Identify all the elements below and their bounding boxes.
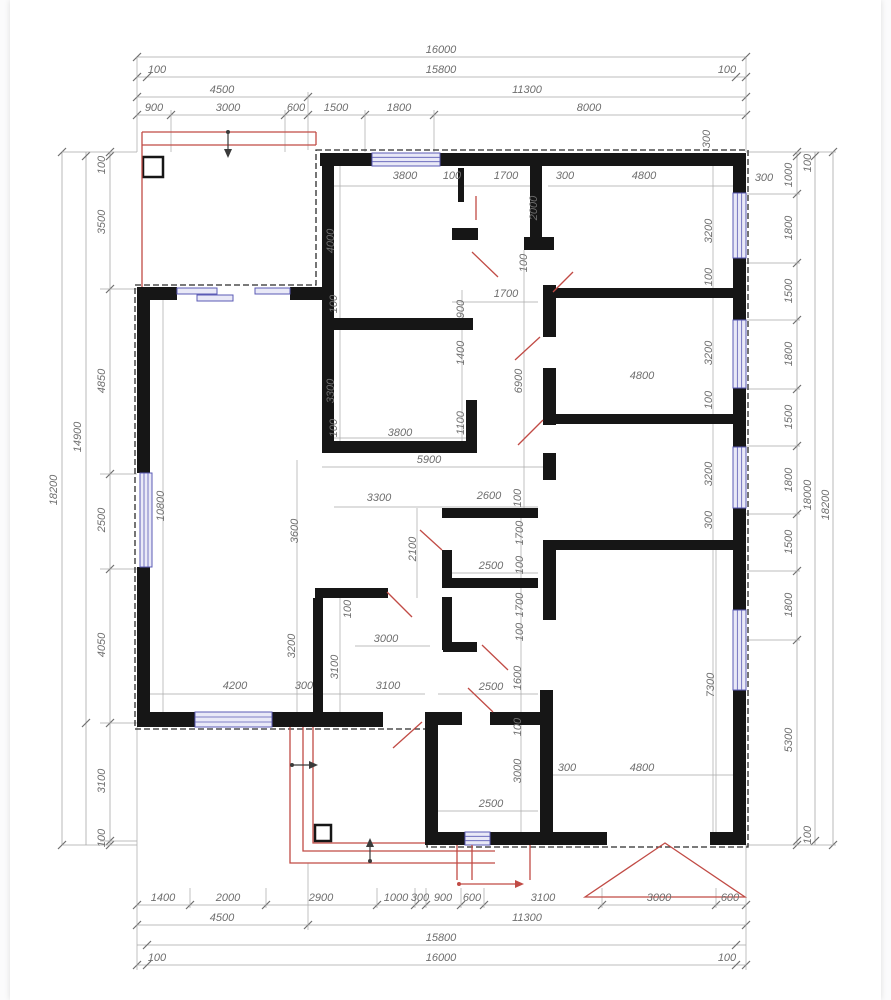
red-annotation-line	[387, 592, 412, 617]
dim-label: 11300	[512, 912, 543, 924]
dim-label: 600	[721, 892, 740, 904]
dim-label: 16000	[426, 44, 457, 56]
dim-label: 3100	[531, 892, 556, 904]
exterior-dashed-outline	[135, 150, 748, 847]
direction-arrow-dot	[368, 859, 372, 863]
wall-segment	[290, 287, 322, 300]
column-post	[143, 157, 163, 177]
dim-label: 2000	[215, 892, 241, 904]
dim-label: 2500	[478, 681, 504, 693]
wall-segment	[425, 712, 438, 845]
dim-label: 900	[145, 102, 164, 114]
dim-label: 3200	[286, 633, 298, 658]
dim-label: 4500	[210, 912, 235, 924]
red-annotation-line	[482, 645, 508, 670]
dim-label: 3300	[367, 492, 392, 504]
floor-plan-drawing: 1600010015800100450011300900300060015001…	[0, 0, 891, 1000]
dim-label: 3800	[388, 427, 413, 439]
wall-segment	[137, 287, 177, 300]
wall-segment	[733, 388, 746, 447]
wall-segment	[466, 400, 477, 453]
wall-segment	[442, 508, 538, 518]
wall-segment	[524, 237, 554, 250]
red-annotation-line	[472, 252, 498, 277]
dim-label: 1700	[514, 592, 526, 617]
dim-label: 14900	[72, 421, 84, 452]
dim-label: 4800	[630, 762, 655, 774]
dim-label: 4050	[96, 632, 108, 657]
dim-label: 2500	[96, 507, 108, 533]
dim-label: 3200	[703, 218, 715, 243]
dim-label: 1500	[783, 529, 795, 554]
dim-label: 7300	[705, 672, 717, 697]
window	[733, 447, 746, 508]
window	[140, 473, 152, 567]
wall-segment	[322, 318, 473, 330]
dim-label: 1700	[514, 520, 526, 545]
window	[372, 153, 440, 166]
dim-label: 300	[755, 172, 774, 184]
wall-segment	[543, 540, 556, 620]
dim-label: 1100	[455, 410, 467, 435]
wall-segment	[438, 712, 462, 725]
dim-label: 4200	[223, 680, 248, 692]
dim-label: 100	[718, 952, 737, 964]
dim-label: 2500	[478, 798, 504, 810]
dim-label: 100	[512, 717, 524, 736]
dim-label: 1500	[324, 102, 349, 114]
wall-segment	[548, 414, 733, 424]
window	[195, 712, 272, 727]
dim-label: 4800	[630, 370, 655, 382]
dim-label: 3500	[96, 209, 108, 234]
dim-label: 300	[411, 892, 430, 904]
dim-label: 1000	[783, 162, 795, 187]
wall-segment	[733, 508, 746, 610]
dim-label: 1700	[494, 170, 519, 182]
dim-label: 100	[328, 418, 340, 437]
dim-label: 100	[148, 64, 167, 76]
dim-label: 1600	[512, 665, 524, 690]
dim-label: 2100	[407, 536, 419, 562]
dim-label: 10800	[155, 490, 167, 521]
dim-label: 3300	[325, 378, 337, 403]
dim-label: 600	[463, 892, 482, 904]
window	[733, 610, 746, 690]
dim-label: 3100	[329, 654, 341, 679]
wall-segment	[733, 690, 746, 845]
dim-label: 1800	[783, 215, 795, 240]
windows-layer	[140, 153, 746, 845]
column-post	[315, 825, 331, 841]
dim-label: 1800	[387, 102, 412, 114]
dim-label: 600	[287, 102, 306, 114]
wall-segment	[320, 153, 372, 166]
dim-label: 900	[434, 892, 453, 904]
dim-label: 16000	[426, 952, 457, 964]
wall-segment	[272, 712, 383, 727]
dim-label: 300	[558, 762, 577, 774]
dim-label: 5900	[417, 454, 442, 466]
wall-segment	[710, 832, 746, 845]
wall-segment	[315, 588, 388, 598]
wall-segment	[548, 540, 733, 550]
dim-label: 1800	[783, 341, 795, 366]
wall-segment	[548, 288, 733, 298]
dim-label: 4000	[325, 228, 337, 253]
dim-label: 3200	[703, 461, 715, 486]
dim-label: 100	[342, 599, 354, 618]
dim-label: 1800	[783, 467, 795, 492]
dim-label: 100	[802, 825, 814, 844]
dim-label: 4850	[96, 368, 108, 393]
dim-label: 100	[718, 64, 737, 76]
wall-segment	[322, 441, 477, 453]
dim-label: 11300	[512, 84, 543, 96]
dim-label: 100	[148, 952, 167, 964]
scanned-sheet: 1600010015800100450011300900300060015001…	[0, 0, 891, 1000]
sliding-door-panel	[177, 288, 217, 294]
dim-label: 100	[514, 555, 526, 574]
dim-label: 1500	[783, 278, 795, 303]
sliding-door-panel	[255, 288, 290, 294]
dim-label: 5300	[783, 727, 795, 752]
dim-label: 18200	[48, 474, 60, 505]
dim-label: 300	[703, 510, 715, 529]
red-annotation-line	[393, 722, 422, 748]
window	[733, 193, 746, 258]
wall-segment	[137, 567, 150, 727]
dim-label: 100	[328, 294, 340, 313]
dim-label: 300	[556, 170, 575, 182]
direction-arrow-head	[515, 880, 524, 888]
wall-segment	[543, 453, 556, 480]
wall-segment	[440, 153, 746, 166]
wall-segment	[452, 228, 478, 240]
red-annotation-path	[585, 843, 745, 897]
sliding-door-panel	[197, 295, 233, 301]
window	[465, 832, 490, 845]
wall-segment	[490, 832, 607, 845]
dim-label: 300	[701, 129, 713, 148]
dim-label: 900	[455, 299, 467, 318]
dimension-labels-layer: 1600010015800100450011300900300060015001…	[48, 44, 832, 964]
dim-label: 4800	[632, 170, 657, 182]
dim-label: 1400	[151, 892, 176, 904]
dim-label: 3000	[374, 633, 399, 645]
dim-label: 3000	[512, 758, 524, 783]
dim-label: 2900	[308, 892, 334, 904]
dim-label: 8000	[577, 102, 602, 114]
dim-label: 100	[96, 828, 108, 847]
dim-label: 100	[512, 488, 524, 507]
dim-label: 100	[514, 622, 526, 641]
dim-label: 3000	[216, 102, 241, 114]
dim-label: 100	[96, 155, 108, 174]
dim-label: 1700	[494, 288, 519, 300]
red-annotation-line	[515, 337, 540, 360]
dim-label: 1800	[783, 592, 795, 617]
dim-label: 3100	[376, 680, 401, 692]
dim-label: 15800	[426, 64, 457, 76]
dim-label: 18000	[802, 479, 814, 510]
red-annotation-line	[518, 420, 543, 445]
dim-label: 2000	[528, 195, 540, 221]
dim-label: 2600	[476, 490, 502, 502]
dim-label: 2500	[478, 560, 504, 572]
dim-label: 4500	[210, 84, 235, 96]
dim-label: 3200	[703, 340, 715, 365]
dim-label: 100	[802, 153, 814, 172]
dim-label: 1400	[455, 340, 467, 365]
direction-arrow-dot	[290, 763, 294, 767]
wall-segment	[443, 642, 477, 652]
dim-label: 100	[443, 170, 462, 182]
dim-label: 3000	[647, 892, 672, 904]
direction-arrow-dot	[457, 882, 461, 886]
dim-label: 100	[518, 253, 530, 272]
wall-segment	[137, 287, 150, 473]
wall-segment	[313, 598, 323, 712]
window	[733, 320, 746, 388]
wall-segment	[733, 166, 746, 193]
dim-label: 100	[703, 390, 715, 409]
dim-label: 300	[295, 680, 314, 692]
walls-layer	[135, 150, 748, 847]
dim-label: 6900	[513, 368, 525, 393]
dim-label: 3800	[393, 170, 418, 182]
dim-label: 3600	[289, 518, 301, 543]
dim-label: 1500	[783, 404, 795, 429]
dim-label: 1000	[384, 892, 409, 904]
direction-arrow-dot	[226, 130, 230, 134]
dim-label: 15800	[426, 932, 457, 944]
dim-label: 100	[703, 267, 715, 286]
wall-segment	[443, 578, 538, 588]
dim-label: 18200	[820, 489, 832, 520]
red-annotation-line	[420, 530, 442, 550]
wall-segment	[733, 258, 746, 320]
dim-label: 3100	[96, 768, 108, 793]
direction-arrow-head	[224, 149, 232, 158]
wall-segment	[540, 690, 553, 832]
